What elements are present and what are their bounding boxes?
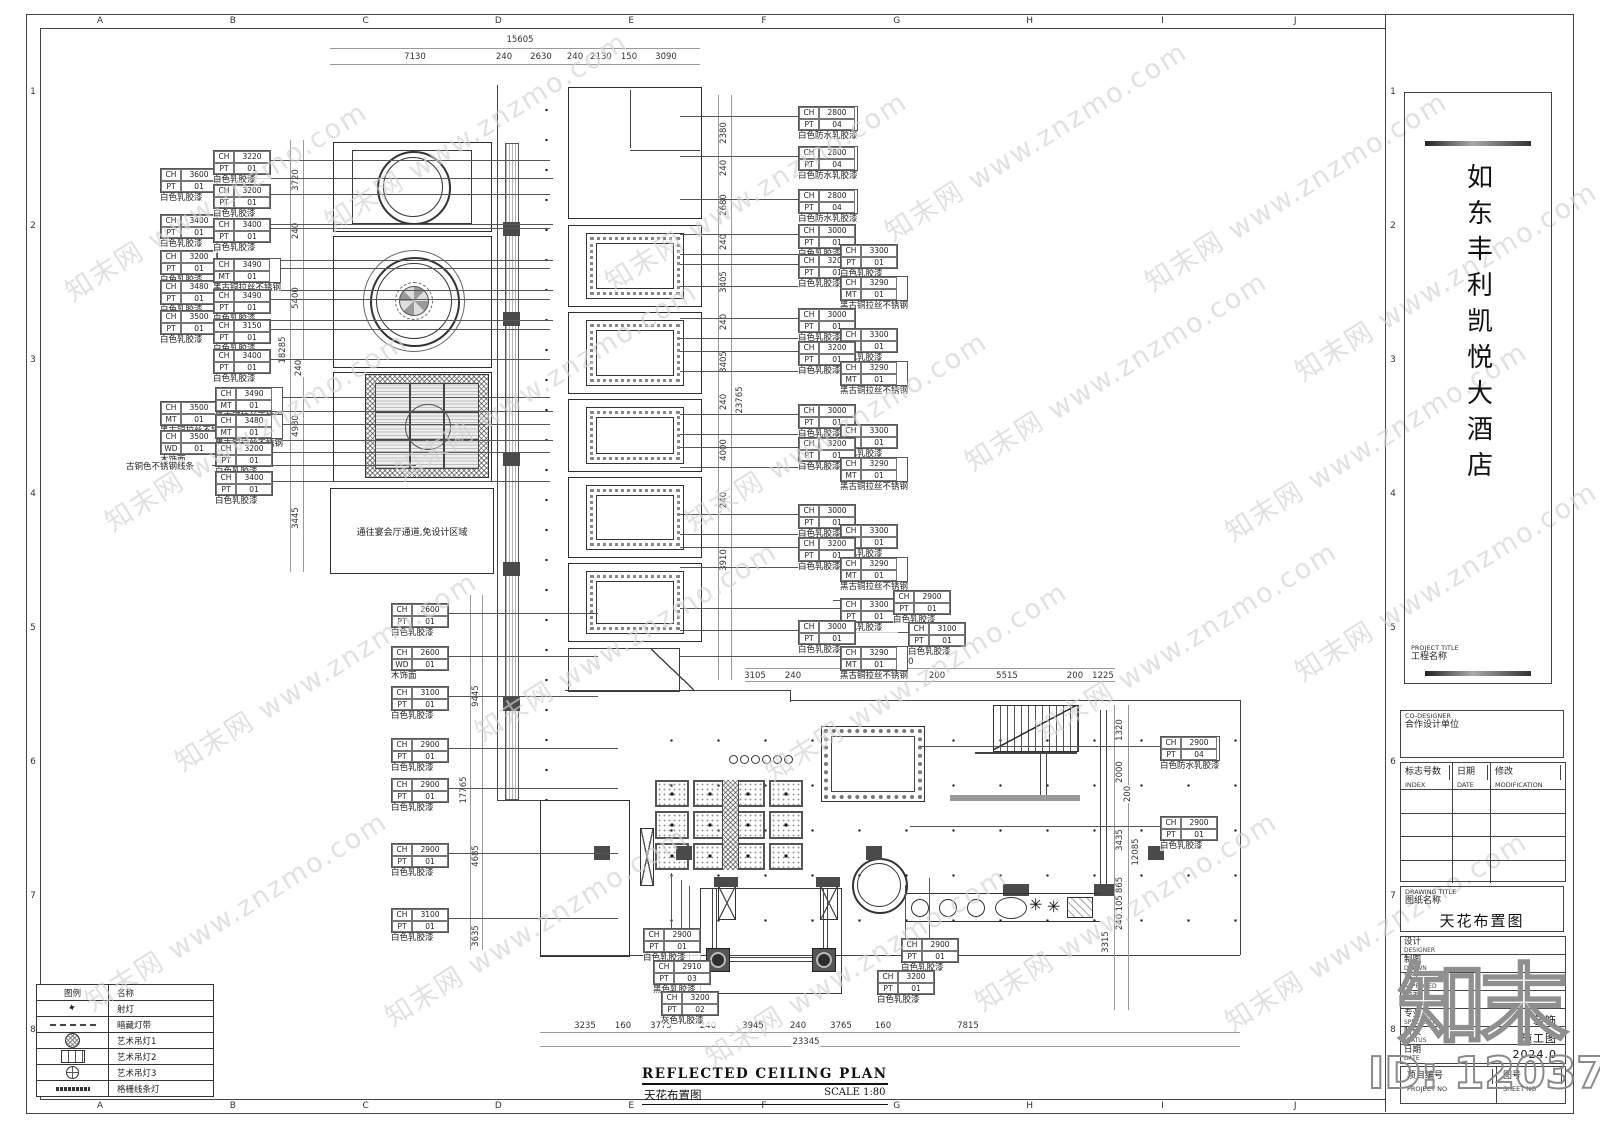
dim-line xyxy=(1114,705,1115,1010)
legend-symbol-cell xyxy=(37,1017,109,1032)
callout-material-label: 白色防水乳胶漆 xyxy=(798,131,858,141)
callout-cell: 3200 xyxy=(236,443,272,455)
callout-cell: 3000 xyxy=(819,505,855,517)
revision-empty-cell xyxy=(1401,837,1453,860)
callout-cell: PT xyxy=(894,603,914,615)
callout-box: CH3290MT01 xyxy=(840,361,908,386)
leader-line xyxy=(920,746,1160,747)
leader-line xyxy=(272,397,550,398)
grid-letter: J xyxy=(1294,16,1297,26)
callout-cell: CH xyxy=(841,599,861,611)
revision-empty-cell xyxy=(1401,814,1453,837)
dimension-label: 7815 xyxy=(956,1021,980,1031)
callout-cell: CH xyxy=(799,621,819,633)
dimension-label: 3635 xyxy=(471,924,481,948)
callout-cell: 01 xyxy=(861,570,897,582)
callout-cell: CH xyxy=(392,739,412,751)
dimension-label: 865 xyxy=(1115,876,1125,894)
drawing-title-label-zh: 图纸名称 xyxy=(1405,896,1559,907)
legend-name: 艺术吊灯3 xyxy=(109,1065,211,1080)
callout-cell: CH xyxy=(214,219,234,231)
grid-letter: B xyxy=(230,16,236,26)
material-callout: CH3100PT01白色乳胶漆 xyxy=(908,622,966,657)
dimension-label: 240 xyxy=(566,52,584,62)
callout-cell: CH xyxy=(392,604,412,616)
grid-letter: G xyxy=(893,16,900,26)
callout-cell: 01 xyxy=(861,537,897,549)
callout-box: CH3500WD01 xyxy=(160,430,218,455)
downlight xyxy=(729,755,738,764)
callout-cell: 2910 xyxy=(674,961,710,973)
callout-cell: CH xyxy=(799,538,819,550)
callout-cell: PT xyxy=(214,332,234,344)
dimension-label: 240 xyxy=(719,313,729,331)
callout-cell: CH xyxy=(161,215,181,227)
callout-material-label: 灰色乳胶漆 xyxy=(661,1016,719,1026)
callout-cell: 3000 xyxy=(819,621,855,633)
leader-line xyxy=(272,424,550,425)
callout-cell: 01 xyxy=(914,603,950,615)
grid-number: 7 xyxy=(30,891,36,901)
legend-header-symbol: 图例 xyxy=(37,985,109,1000)
callout-cell: CH xyxy=(214,151,234,163)
leader-line xyxy=(270,228,550,229)
callout-cell: PT xyxy=(799,450,819,462)
revision-empty-cell xyxy=(1453,814,1491,837)
callout-cell: PT xyxy=(799,321,819,333)
dim-line xyxy=(482,595,483,950)
material-callout: CH3200PT01白色乳胶漆 xyxy=(213,184,271,219)
plant-symbol: ✳ xyxy=(1047,897,1060,916)
no-design-area-label: 通往宴会厅通道,免设计区域 xyxy=(355,525,470,538)
callout-cell: 2600 xyxy=(412,604,448,616)
grid-letter: G xyxy=(893,1101,900,1111)
stair-rail xyxy=(1040,752,1041,798)
callout-cell: CH xyxy=(216,415,236,427)
callout-cell: PT xyxy=(799,354,819,366)
drawing-sheet: AABBCCDDEEFFGGHHIIJJ1122334455667788 通往宴… xyxy=(0,0,1600,1130)
callout-cell: CH xyxy=(392,647,412,659)
callout-box: CH3200PT01 xyxy=(877,970,935,995)
callout-cell: PT xyxy=(392,751,412,763)
callout-material-label: 白色乳胶漆 xyxy=(391,803,449,813)
material-callout: CH2900PT01白色乳胶漆 xyxy=(391,778,449,813)
legend-symbol-cell xyxy=(37,1065,109,1080)
callout-cell: 2800 xyxy=(819,190,855,202)
leader-line xyxy=(270,359,550,360)
legend-symbol-cell xyxy=(37,1049,109,1064)
callout-cell: 01 xyxy=(236,484,272,496)
callout-cell: CH xyxy=(214,185,234,197)
callout-material-label: 白色乳胶漆 xyxy=(391,933,449,943)
grid-number: 3 xyxy=(30,355,36,365)
callout-cell: 01 xyxy=(234,231,270,243)
legend-name: 暗藏灯带 xyxy=(109,1017,211,1032)
title-block: 如东丰利凯悦大酒店 PROJECT TITLE 工程名称 CO-DESIGNER… xyxy=(1392,14,1572,1112)
callout-cell: 3480 xyxy=(236,415,272,427)
callout-cell: 01 xyxy=(234,362,270,374)
plan-title-scale: SCALE 1:80 xyxy=(824,1087,885,1103)
dimension-label: 4685 xyxy=(471,844,481,868)
callout-cell: PT xyxy=(161,181,181,193)
callout-cell: MT xyxy=(841,470,861,482)
dimension-label: 200 xyxy=(1066,671,1084,681)
callout-cell: 3400 xyxy=(234,219,270,231)
callout-cell: CH xyxy=(878,971,898,983)
dimension-label: 23765 xyxy=(735,385,745,414)
grid-letter: A xyxy=(97,1101,103,1111)
downlight xyxy=(784,755,793,764)
callout-cell: CH xyxy=(216,472,236,484)
callout-box: CH3490PT01 xyxy=(213,289,271,314)
callout-cell: 2600 xyxy=(412,647,448,659)
grid-letter: B xyxy=(230,1101,236,1111)
dimension-label: 3235 xyxy=(573,1021,597,1031)
no-design-area: 通往宴会厅通道,免设计区域 xyxy=(330,488,494,574)
revision-empty-row xyxy=(1401,861,1565,884)
dimension-label: 1320 xyxy=(1115,718,1125,742)
leader-line xyxy=(680,156,798,157)
leader-line xyxy=(671,873,672,928)
callout-cell: PT xyxy=(799,417,819,429)
revision-empty-cell xyxy=(1491,790,1563,813)
callout-cell: PT xyxy=(799,237,819,249)
dimension-label: 2130 xyxy=(589,52,613,62)
callout-cell: 01 xyxy=(181,227,217,239)
callout-box: CH3300PT01 xyxy=(840,244,898,269)
dim-line xyxy=(745,681,1115,682)
column xyxy=(503,452,520,466)
callout-cell: PT xyxy=(161,263,181,275)
material-callout: CH3500PT01白色乳胶漆 xyxy=(160,310,218,345)
round-column xyxy=(816,952,832,968)
callout-cell: 3400 xyxy=(236,472,272,484)
callout-cell: CH xyxy=(161,251,181,263)
callout-cell: MT xyxy=(161,414,181,426)
callout-cell: 01 xyxy=(412,921,448,933)
callout-cell: 01 xyxy=(819,633,855,645)
callout-cell: 2900 xyxy=(922,939,958,951)
callout-cell: 04 xyxy=(819,202,855,214)
entrance-portico xyxy=(700,888,842,994)
callout-cell: 2900 xyxy=(412,844,448,856)
callout-cell: 01 xyxy=(861,341,897,353)
decor-circle xyxy=(911,899,929,917)
callout-cell: CH xyxy=(214,320,234,332)
leader-line xyxy=(680,234,798,235)
callout-cell: 3100 xyxy=(412,687,448,699)
callout-cell: WD xyxy=(392,659,412,671)
site-logo-watermark: 知末 xyxy=(1398,962,1562,1050)
callout-cell: 3200 xyxy=(819,538,855,550)
dimension-label: 240 xyxy=(789,1021,807,1031)
callout-material-label: 白色乳胶漆 xyxy=(160,239,218,249)
callout-cell: MT xyxy=(841,659,861,671)
ceiling-inset xyxy=(586,485,684,550)
leader-line xyxy=(680,116,798,117)
dimension-label: 3315 xyxy=(1101,930,1111,954)
site-id-watermark: ID: 1203765827 xyxy=(1368,1052,1600,1096)
callout-cell: CH xyxy=(841,245,861,257)
chandelier-ring-inner xyxy=(383,157,443,217)
leader-line xyxy=(448,788,618,789)
callout-box: CH3400PT01 xyxy=(215,471,273,496)
dimension-label: 3105 xyxy=(743,671,767,681)
callout-cell: 2900 xyxy=(664,929,700,941)
project-title-label-zh: 工程名称 xyxy=(1411,652,1459,663)
callout-material-label: 白色乳胶漆 xyxy=(391,628,449,638)
wood-panel xyxy=(376,441,409,468)
callout-cell: 3400 xyxy=(234,350,270,362)
lobby-wall-top-left xyxy=(565,690,790,691)
revision-empty-cell xyxy=(1491,814,1563,837)
dim-line xyxy=(718,95,719,680)
coffer-cell xyxy=(769,843,803,870)
material-callout: CH2800PT04白色防水乳胶漆 xyxy=(798,146,858,181)
legend-symbol-cell xyxy=(37,1081,109,1096)
callout-cell: CH xyxy=(841,647,861,659)
grid-number: 1 xyxy=(30,87,36,97)
leader-line xyxy=(680,608,840,609)
leader-line xyxy=(448,656,598,657)
dimension-label: 240 xyxy=(719,233,729,251)
callout-box: CH3400PT01 xyxy=(213,349,271,374)
leader-line xyxy=(270,268,550,269)
grid-letter: A xyxy=(97,16,103,26)
callout-cell: 01 xyxy=(234,302,270,314)
grid-number: 8 xyxy=(30,1025,36,1035)
dimension-label: 3765 xyxy=(829,1021,853,1031)
callout-cell: 01 xyxy=(181,263,217,275)
dim-line xyxy=(1128,705,1129,1010)
leader-line xyxy=(680,547,798,548)
material-callout: CH3400PT01白色乳胶漆 xyxy=(213,218,271,253)
decor-panel xyxy=(1067,897,1093,918)
callout-cell: 3200 xyxy=(181,251,217,263)
corridor-wall xyxy=(497,85,498,800)
column xyxy=(866,846,882,860)
callout-cell: 3500 xyxy=(181,431,217,443)
callout-cell: 2900 xyxy=(914,591,950,603)
callout-cell: 01 xyxy=(181,181,217,193)
callout-cell: CH xyxy=(161,169,181,181)
callout-cell: MT xyxy=(216,400,236,412)
callout-cell: PT xyxy=(799,633,819,645)
material-callout: CH3290MT01黑古铜拉丝不锈钢 xyxy=(840,646,908,681)
dimension-label: 2000 xyxy=(1115,760,1125,784)
callout-cell: PT xyxy=(161,227,181,239)
legend-row: 艺术吊灯2 xyxy=(37,1049,213,1065)
dim-line xyxy=(540,1032,1240,1033)
callout-box: CH3500PT01 xyxy=(160,310,218,335)
dimension-label: 17765 xyxy=(459,775,469,804)
callout-box: CH3400PT01 xyxy=(213,218,271,243)
co-designer-label-zh: 合作设计单位 xyxy=(1405,720,1559,731)
grid-letter: E xyxy=(628,1101,634,1111)
dimension-label: 2630 xyxy=(529,52,553,62)
callout-material-label: 黑古铜拉丝不锈钢 xyxy=(840,482,908,492)
downlight xyxy=(740,755,749,764)
callout-cell: CH xyxy=(214,290,234,302)
material-callout: CH3200PT01白色乳胶漆 xyxy=(877,970,935,1005)
grid-letter: D xyxy=(495,16,502,26)
room-divider xyxy=(630,150,700,151)
callout-cell: 3480 xyxy=(181,281,217,293)
revision-empty-cell xyxy=(1491,861,1563,884)
callout-cell: 2800 xyxy=(819,107,855,119)
grid-letter: J xyxy=(1294,1101,1297,1111)
callout-cell: PT xyxy=(909,635,929,647)
coffer-cell xyxy=(655,811,689,838)
material-callout: CH2900PT01白色乳胶漆 xyxy=(643,928,701,963)
ceiling-inset xyxy=(586,407,684,464)
callout-material-label: 白色乳胶漆 xyxy=(391,711,449,721)
ch3-icon xyxy=(66,1066,79,1079)
dimension-label: 1225 xyxy=(1091,671,1115,681)
legend-table: 图例 名称 ✦射灯暗藏灯带艺术吊灯1艺术吊灯2艺术吊灯3格栅线条灯 xyxy=(36,984,214,1097)
callout-cell: 3290 xyxy=(861,558,897,570)
callout-cell: 3600 xyxy=(181,169,217,181)
callout-cell: CH xyxy=(841,525,861,537)
leader-line xyxy=(448,918,618,919)
coffer-cell xyxy=(769,811,803,838)
callout-box: CH3100PT01 xyxy=(391,908,449,933)
callout-cell: 03 xyxy=(674,973,710,985)
dimension-label: 23345 xyxy=(791,1037,820,1047)
grid-letter: H xyxy=(1026,1101,1033,1111)
callout-box: CH3490MT01 xyxy=(215,387,283,412)
leader-line xyxy=(270,329,550,330)
portico-line xyxy=(712,888,713,954)
leader-line xyxy=(448,748,618,749)
callout-cell: 01 xyxy=(412,699,448,711)
callout-cell: 3200 xyxy=(234,185,270,197)
callout-cell: CH xyxy=(799,505,819,517)
callout-cell: CH xyxy=(654,961,674,973)
callout-cell: CH xyxy=(841,458,861,470)
callout-cell: 2900 xyxy=(1181,737,1217,749)
callout-cell: CH xyxy=(909,623,929,635)
callout-cell: PT xyxy=(1161,829,1181,841)
callout-cell: 01 xyxy=(861,611,897,623)
dimension-label: 150 xyxy=(620,52,638,62)
coffer-cell xyxy=(655,780,689,807)
portico-line xyxy=(823,888,824,954)
leader-line xyxy=(680,414,798,415)
callout-box: CH3400PT01 xyxy=(160,214,218,239)
inner-frame-left xyxy=(40,28,41,1100)
callout-box: CH3200PT01 xyxy=(213,184,271,209)
leader-line xyxy=(680,351,798,352)
callout-cell: CH xyxy=(799,147,819,159)
callout-material-label: 黑古铜拉丝不锈钢 xyxy=(840,671,908,681)
material-callout: CH3400PT01白色乳胶漆 xyxy=(213,349,271,384)
leader-line xyxy=(270,194,550,195)
callout-cell: PT xyxy=(799,550,819,562)
callout-box: CH2900PT01 xyxy=(391,843,449,868)
grid-letter: C xyxy=(362,16,368,26)
callout-box: CH2800PT04 xyxy=(798,106,858,131)
logo-bar xyxy=(1425,671,1531,676)
revision-table-header: 标志号数INDEX日期DATE修改MODIFICATION xyxy=(1401,763,1565,790)
callout-material-label: 白色乳胶漆 xyxy=(1160,841,1218,851)
co-designer-box: CO-DESIGNER 合作设计单位 xyxy=(1400,710,1564,758)
callout-cell: CH xyxy=(1161,737,1181,749)
callout-cell: CH xyxy=(216,443,236,455)
project-title-label-en: PROJECT TITLE xyxy=(1411,645,1459,652)
round-column xyxy=(710,952,726,968)
callout-cell: 01 xyxy=(236,400,272,412)
callout-cell: PT xyxy=(214,163,234,175)
callout-cell: 01 xyxy=(898,983,934,995)
ceiling-inset xyxy=(586,320,684,386)
callout-cell: PT xyxy=(214,302,234,314)
mullion-column xyxy=(640,828,654,886)
dimension-label: 200 xyxy=(928,671,946,681)
callout-cell: 3200 xyxy=(898,971,934,983)
legend-symbol-cell: ✦ xyxy=(37,1001,109,1016)
callout-cell: PT xyxy=(644,941,664,953)
callout-box: CH3200PT02 xyxy=(661,991,719,1016)
callout-box: CH2900PT04 xyxy=(1160,736,1220,761)
dim-line xyxy=(731,95,732,680)
revision-header-cell: 日期DATE xyxy=(1453,763,1491,793)
revision-header-zh: 日期 xyxy=(1455,765,1488,780)
callout-cell: 01 xyxy=(412,751,448,763)
callout-cell: 3490 xyxy=(236,388,272,400)
callout-material-label: 白色乳胶漆 xyxy=(160,335,218,345)
callout-cell: PT xyxy=(799,267,819,279)
dimension-label: 240 xyxy=(294,359,304,377)
callout-cell: 3400 xyxy=(181,215,217,227)
grid-number: 2 xyxy=(30,221,36,231)
stair-direction-line xyxy=(993,705,1077,750)
callout-cell: 02 xyxy=(682,1004,718,1016)
callout-cell: 2900 xyxy=(412,779,448,791)
leader-line xyxy=(448,853,618,854)
downlight xyxy=(762,755,771,764)
callout-cell: 3290 xyxy=(861,277,897,289)
callout-box: CH3100PT01 xyxy=(908,622,966,647)
callout-cell: PT xyxy=(841,257,861,269)
callout-material-label: 白色防水乳胶漆 xyxy=(798,171,858,181)
callout-box: CH2800PT04 xyxy=(798,189,858,214)
callout-box: CH3480MT01 xyxy=(215,414,283,439)
callout-cell: 01 xyxy=(929,635,965,647)
callout-cell: CH xyxy=(1161,817,1181,829)
material-callout: CH3490MT01黑古铜拉丝不锈钢 xyxy=(213,258,281,293)
callout-cell: CH xyxy=(216,388,236,400)
corridor-ceiling xyxy=(521,85,565,800)
callout-cell: PT xyxy=(799,517,819,529)
dimension-label: 2680 xyxy=(719,193,729,217)
material-callout: CH2600PT01白色乳胶漆 xyxy=(391,603,449,638)
lobby-side-room xyxy=(540,800,630,957)
lobby-wall-right xyxy=(1240,700,1241,955)
callout-box: CH2600WD01 xyxy=(391,646,449,671)
callout-cell: PT xyxy=(392,921,412,933)
portico-line xyxy=(827,888,828,954)
callout-cell: 3490 xyxy=(234,290,270,302)
callout-cell: PT xyxy=(654,973,674,985)
plan-title-sub: 天花布置图 SCALE 1:80 xyxy=(642,1085,888,1105)
callout-cell: 01 xyxy=(412,659,448,671)
revision-empty-row xyxy=(1401,814,1565,838)
coffer-center-strip xyxy=(722,780,739,870)
callout-material-label: 白色乳胶漆 xyxy=(215,496,273,506)
callout-cell: 04 xyxy=(819,159,855,171)
callout-cell: CH xyxy=(799,342,819,354)
